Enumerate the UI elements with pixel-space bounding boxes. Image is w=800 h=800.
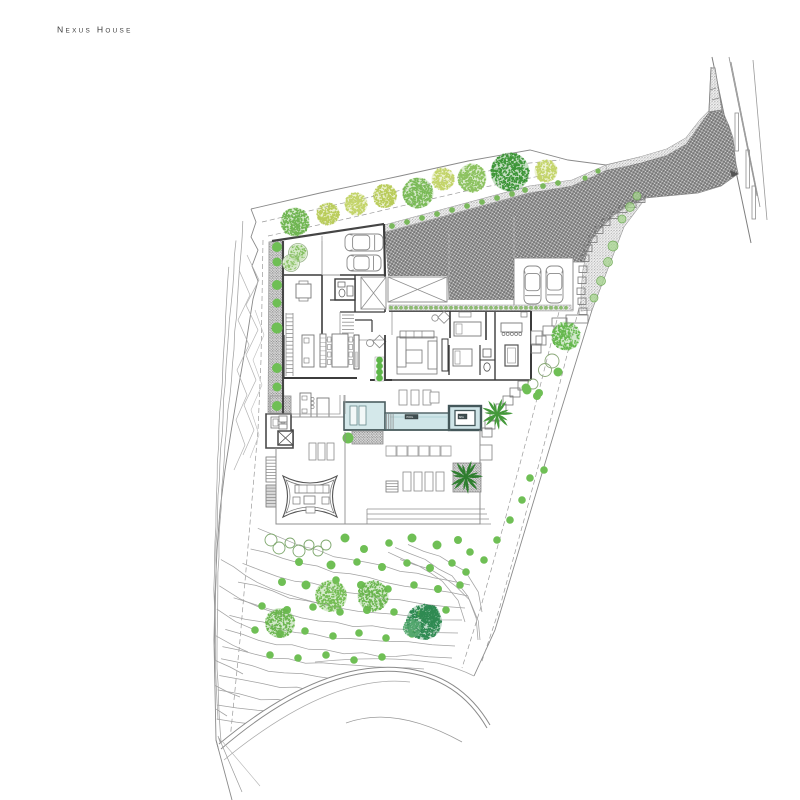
svg-text:SPA: SPA xyxy=(459,415,464,419)
svg-text:POOL: POOL xyxy=(407,416,414,419)
